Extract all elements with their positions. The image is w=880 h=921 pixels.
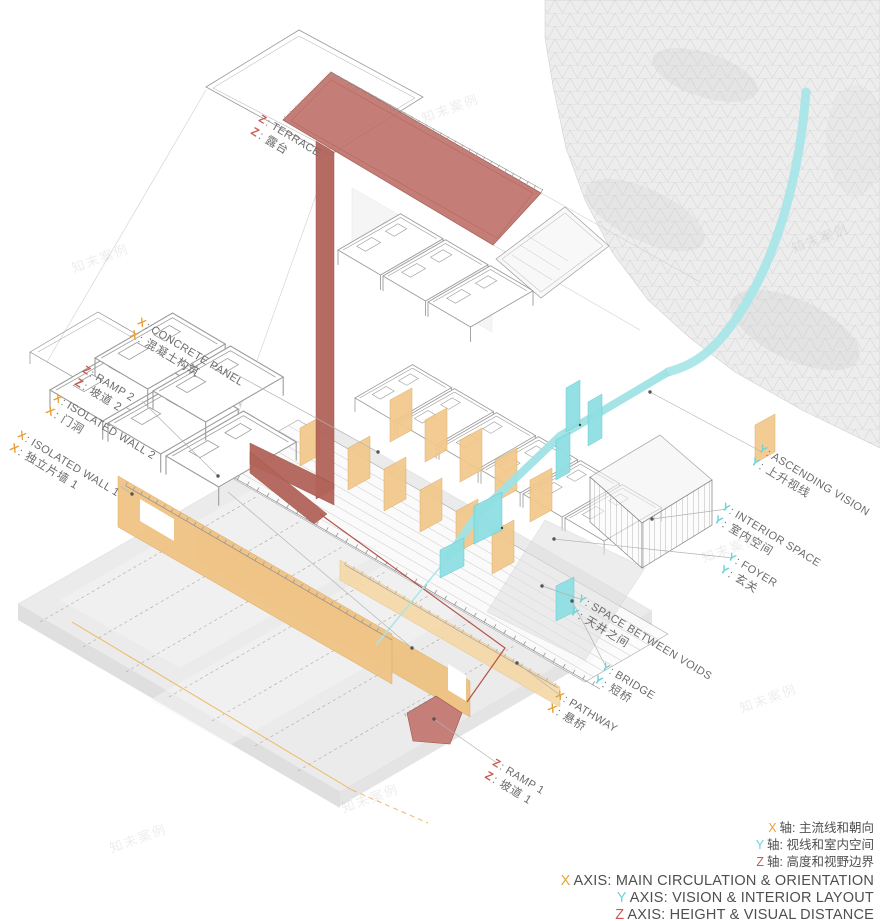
terrain-mesh — [545, 0, 880, 448]
axonometric-diagram-page: Z: TERRACE Z: 露台 X: CONCRETE PANEL X: 混凝… — [0, 0, 880, 921]
legend-row: X轴: 主流线和朝向 — [756, 820, 874, 837]
glass-foyer-box — [590, 435, 712, 568]
legend-row: XAXIS: MAIN CIRCULATION & ORIENTATION — [561, 873, 874, 890]
legend-english: XAXIS: MAIN CIRCULATION & ORIENTATION YA… — [561, 873, 874, 921]
legend-row: Z轴: 高度和视野边界 — [756, 854, 874, 871]
ramp-2-strip — [316, 141, 334, 499]
legend-row: YAXIS: VISION & INTERIOR LAYOUT — [561, 890, 874, 907]
legend-row: ZAXIS: HEIGHT & VISUAL DISTANCE — [561, 907, 874, 921]
legend-row: Y轴: 视线和室内空间 — [756, 837, 874, 854]
legend-chinese: X轴: 主流线和朝向 Y轴: 视线和室内空间 Z轴: 高度和视野边界 — [756, 820, 874, 871]
